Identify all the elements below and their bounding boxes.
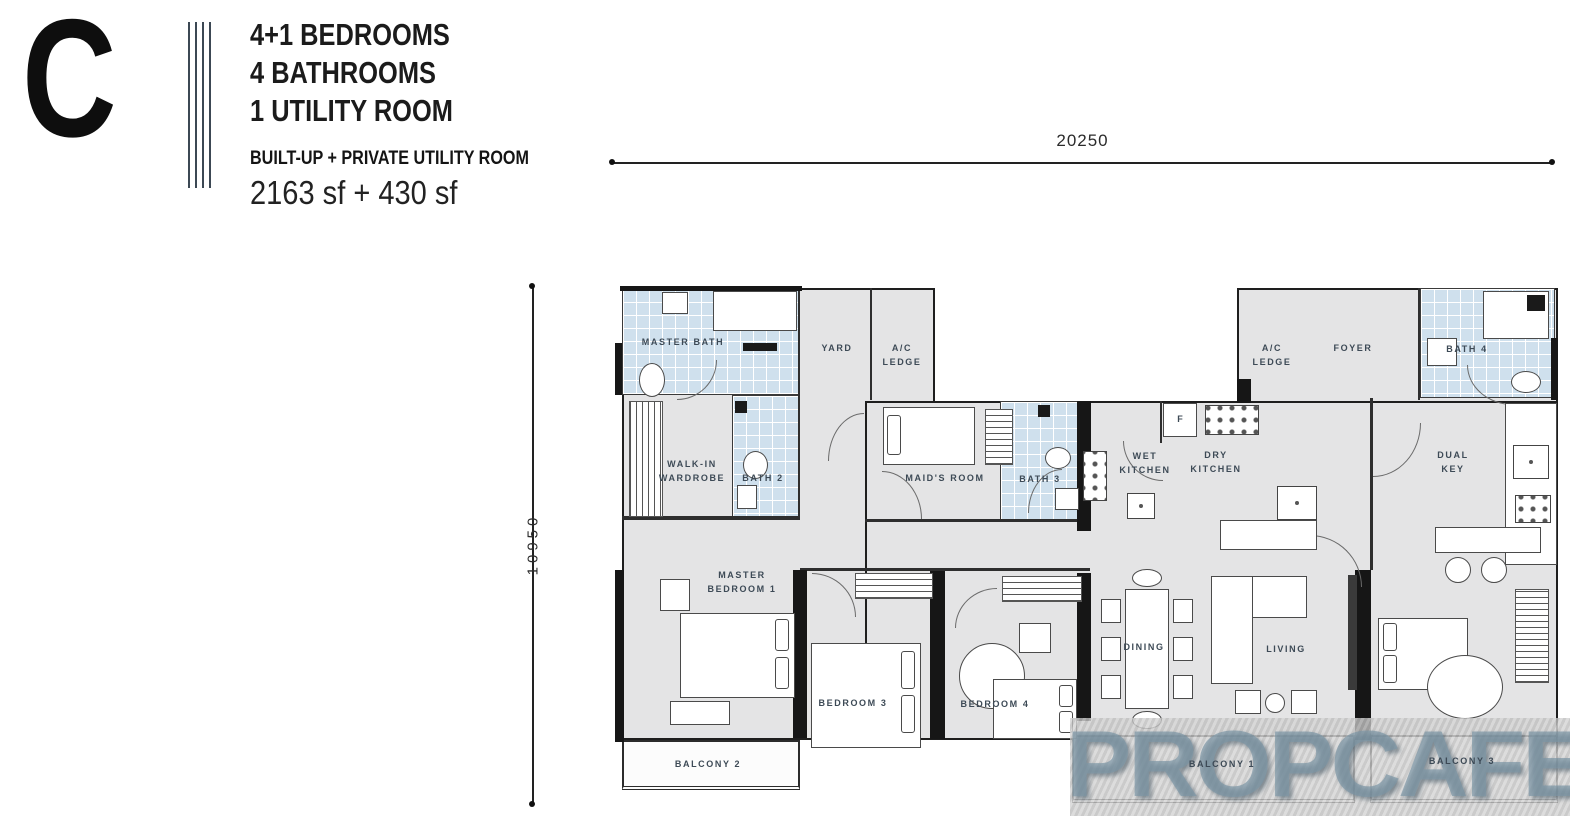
room-label-ac-ledge-right: A/C LEDGE bbox=[1252, 342, 1291, 370]
builtup-title: BUILT-UP + PRIVATE UTILITY ROOM bbox=[250, 148, 529, 170]
sofa-chaise bbox=[1211, 576, 1253, 684]
table bbox=[1435, 527, 1541, 553]
bed-pillow bbox=[1059, 685, 1073, 707]
floorplan-page: C 4+1 BEDROOMS 4 BATHROOMS 1 UTILITY ROO… bbox=[0, 0, 1570, 816]
wall bbox=[798, 288, 800, 520]
wall bbox=[865, 519, 1078, 522]
room-label-wet-kitchen: WET KITCHEN bbox=[1119, 450, 1170, 478]
toilet bbox=[1511, 371, 1541, 393]
chair bbox=[1101, 675, 1121, 699]
sink bbox=[662, 292, 688, 314]
chair bbox=[1235, 690, 1261, 714]
room-label-bedroom-4: BEDROOM 4 bbox=[961, 698, 1030, 712]
dimension-endpoint bbox=[529, 283, 535, 289]
wall bbox=[1355, 570, 1371, 740]
kitchen-counter bbox=[1277, 486, 1317, 520]
room-label-maids-room: MAID'S ROOM bbox=[905, 472, 984, 486]
room-label-balcony-2: BALCONY 2 bbox=[675, 758, 741, 772]
chair bbox=[1173, 675, 1193, 699]
fridge-label: F bbox=[1177, 413, 1183, 427]
config-bedrooms: 4+1 BEDROOMS bbox=[250, 16, 453, 54]
wardrobe-shelving bbox=[855, 573, 933, 599]
stove bbox=[1083, 451, 1107, 501]
room-label-bath-2: BATH 2 bbox=[742, 472, 783, 486]
room-label-yard: YARD bbox=[821, 342, 852, 356]
room-label-ac-ledge-left: A/C LEDGE bbox=[882, 342, 921, 370]
room-label-dining: DINING bbox=[1123, 641, 1164, 655]
bed-pillow bbox=[775, 657, 789, 689]
config-bathrooms: 4 BATHROOMS bbox=[250, 54, 453, 92]
dimension-endpoint bbox=[1549, 159, 1555, 165]
divider-line bbox=[195, 22, 197, 188]
bed-pillow bbox=[1383, 655, 1397, 683]
bench bbox=[670, 701, 730, 725]
sink bbox=[737, 485, 757, 509]
room-label-master-bedroom-1: MASTER BEDROOM 1 bbox=[708, 569, 777, 597]
shower-area bbox=[713, 291, 797, 331]
sink bbox=[1055, 488, 1079, 510]
builtup-value: 2163 sf + 430 sf bbox=[250, 174, 457, 212]
water-heater bbox=[1527, 295, 1545, 311]
config-utility: 1 UTILITY ROOM bbox=[250, 92, 453, 130]
chair bbox=[1291, 690, 1317, 714]
width-dimension-label: 20250 bbox=[612, 131, 1553, 151]
tv-console bbox=[1348, 575, 1357, 690]
room-label-balcony-1: BALCONY 1 bbox=[1189, 758, 1255, 772]
bed-pillow bbox=[901, 695, 915, 733]
chair bbox=[1173, 637, 1193, 661]
wall bbox=[1237, 379, 1251, 403]
wall bbox=[870, 288, 872, 400]
side-table bbox=[1265, 693, 1285, 713]
dimension-endpoint bbox=[609, 159, 615, 165]
wardrobe-shelving bbox=[985, 409, 1013, 465]
room-label-master-bath: MASTER BATH bbox=[642, 336, 724, 350]
room-label-living: LIVING bbox=[1266, 643, 1306, 657]
chair bbox=[660, 579, 690, 611]
room-label-bath-3: BATH 3 bbox=[1019, 473, 1060, 487]
wardrobe-shelving bbox=[1515, 589, 1549, 683]
bed-pillow bbox=[1383, 623, 1397, 651]
chair bbox=[1481, 557, 1507, 583]
room-label-dry-kitchen: DRY KITCHEN bbox=[1190, 449, 1241, 477]
unit-type-letter: C bbox=[22, 0, 114, 175]
wardrobe-shelving bbox=[1002, 576, 1082, 602]
room-label-dual-key: DUAL KEY bbox=[1437, 449, 1468, 477]
chair bbox=[1132, 569, 1162, 587]
wall bbox=[615, 570, 624, 742]
chair bbox=[1019, 623, 1051, 653]
dimension-endpoint bbox=[529, 801, 535, 807]
room-label-bath-4: BATH 4 bbox=[1446, 343, 1487, 357]
divider-line bbox=[202, 22, 204, 188]
stove bbox=[1515, 495, 1551, 523]
kitchen-sink bbox=[1513, 445, 1549, 479]
bed-pillow bbox=[887, 415, 901, 455]
width-dimension-line bbox=[612, 162, 1553, 164]
divider-line bbox=[188, 22, 190, 188]
water-heater bbox=[735, 401, 747, 413]
wall bbox=[615, 343, 622, 395]
bed-pillow bbox=[775, 619, 789, 651]
chair bbox=[1173, 599, 1193, 623]
chair bbox=[1101, 599, 1121, 623]
stove bbox=[1205, 405, 1259, 435]
wall bbox=[1418, 288, 1420, 400]
chair bbox=[1445, 557, 1471, 583]
wall bbox=[793, 570, 807, 738]
bed-pillow bbox=[901, 651, 915, 689]
toilet bbox=[639, 363, 665, 397]
toilet bbox=[1045, 447, 1071, 469]
shower-screen bbox=[743, 343, 777, 351]
wall bbox=[800, 568, 1090, 571]
kitchen-island bbox=[1220, 520, 1317, 550]
room-label-walk-in-wardrobe: WALK-IN WARDROBE bbox=[659, 458, 725, 486]
wall bbox=[1160, 401, 1162, 443]
rug bbox=[1427, 655, 1503, 719]
room-label-bedroom-3: BEDROOM 3 bbox=[819, 697, 888, 711]
height-dimension-label: 10950 bbox=[525, 480, 542, 610]
divider-line bbox=[209, 22, 211, 188]
water-heater bbox=[1038, 405, 1050, 417]
room-label-balcony-3: BALCONY 3 bbox=[1429, 755, 1495, 769]
unit-configuration: 4+1 BEDROOMS 4 BATHROOMS 1 UTILITY ROOM bbox=[250, 16, 497, 130]
kitchen-sink bbox=[1127, 493, 1155, 519]
chair bbox=[1101, 637, 1121, 661]
wall bbox=[1551, 338, 1558, 400]
room-label-foyer: FOYER bbox=[1333, 342, 1372, 356]
